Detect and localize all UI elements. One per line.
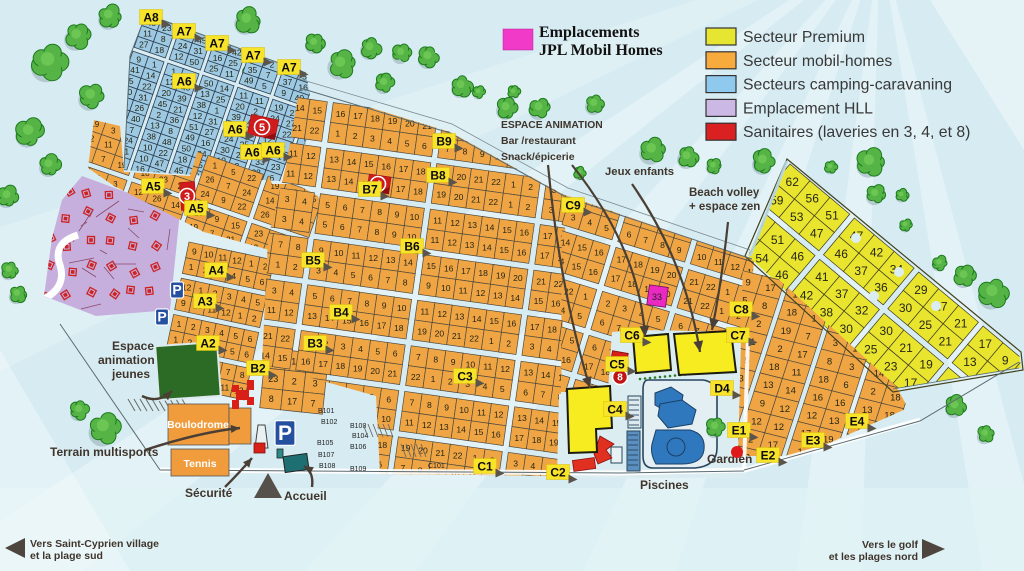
svg-text:25: 25 — [209, 64, 219, 74]
svg-text:12: 12 — [447, 238, 457, 248]
svg-text:51: 51 — [189, 122, 199, 132]
svg-text:22: 22 — [142, 81, 152, 91]
svg-text:11: 11 — [225, 69, 234, 79]
svg-text:11: 11 — [792, 368, 802, 379]
svg-text:6: 6 — [843, 380, 848, 391]
svg-text:1: 1 — [238, 310, 243, 320]
svg-text:7: 7 — [357, 225, 362, 235]
svg-text:2: 2 — [292, 376, 297, 386]
svg-text:30: 30 — [880, 324, 894, 338]
svg-text:2: 2 — [252, 313, 257, 323]
svg-text:20: 20 — [162, 88, 172, 98]
svg-text:9: 9 — [215, 215, 220, 224]
svg-text:12: 12 — [450, 218, 460, 228]
svg-text:16: 16 — [213, 53, 223, 63]
svg-text:C7: C7 — [730, 328, 746, 342]
svg-text:31: 31 — [208, 116, 218, 126]
svg-text:12: 12 — [422, 420, 432, 430]
svg-text:13: 13 — [329, 154, 339, 164]
svg-text:22: 22 — [700, 301, 710, 311]
svg-text:8: 8 — [762, 301, 767, 312]
svg-text:8: 8 — [161, 34, 166, 44]
svg-text:21: 21 — [263, 331, 273, 341]
svg-text:8: 8 — [375, 227, 380, 237]
svg-text:19: 19 — [919, 358, 933, 372]
svg-text:10: 10 — [397, 303, 407, 313]
svg-text:3: 3 — [285, 194, 290, 204]
svg-text:Sanitaires (laveries en 3, 4,: Sanitaires (laveries en 3, 4, et 8) — [743, 124, 970, 141]
svg-text:5: 5 — [255, 298, 260, 308]
svg-text:18: 18 — [890, 392, 901, 403]
svg-text:14: 14 — [472, 314, 482, 324]
svg-text:P: P — [157, 309, 166, 325]
svg-text:18: 18 — [394, 323, 404, 333]
svg-text:7: 7 — [360, 205, 365, 215]
svg-text:A7: A7 — [176, 24, 192, 38]
svg-text:26: 26 — [135, 103, 145, 113]
svg-text:17: 17 — [611, 274, 621, 284]
svg-text:10: 10 — [459, 405, 469, 415]
svg-text:6: 6 — [368, 273, 373, 283]
svg-text:22: 22 — [281, 333, 291, 343]
svg-text:19: 19 — [417, 326, 427, 336]
svg-text:A5: A5 — [145, 179, 161, 193]
svg-text:Beach volley: Beach volley — [689, 187, 760, 199]
svg-text:7: 7 — [410, 398, 415, 408]
svg-text:17: 17 — [797, 350, 808, 361]
svg-text:11: 11 — [430, 235, 439, 245]
svg-text:8: 8 — [365, 298, 370, 308]
svg-text:19: 19 — [549, 438, 559, 448]
svg-text:25: 25 — [216, 95, 226, 105]
svg-text:22: 22 — [453, 450, 463, 460]
svg-text:6: 6 — [244, 350, 249, 360]
svg-text:21: 21 — [474, 175, 484, 185]
svg-text:38: 38 — [197, 100, 207, 110]
svg-text:1: 1 — [511, 180, 516, 190]
svg-text:C2: C2 — [550, 465, 566, 479]
svg-text:7: 7 — [130, 125, 135, 135]
svg-text:9: 9 — [426, 281, 431, 291]
svg-text:30: 30 — [899, 301, 913, 315]
svg-text:41: 41 — [130, 65, 140, 75]
svg-text:21: 21 — [436, 448, 446, 458]
svg-text:7: 7 — [226, 182, 231, 191]
svg-text:12: 12 — [774, 422, 785, 433]
svg-text:10: 10 — [466, 359, 476, 369]
svg-text:3: 3 — [513, 459, 518, 469]
svg-text:13: 13 — [150, 121, 160, 131]
svg-text:14: 14 — [561, 237, 571, 247]
svg-text:14: 14 — [403, 258, 413, 268]
svg-text:17: 17 — [765, 283, 776, 294]
svg-text:1: 1 — [173, 334, 178, 344]
svg-text:8: 8 — [269, 394, 274, 404]
svg-text:5: 5 — [604, 223, 609, 233]
svg-text:Secteurs camping-caravaning: Secteurs camping-caravaning — [743, 77, 952, 94]
svg-text:4: 4 — [531, 461, 536, 471]
svg-text:3: 3 — [341, 341, 346, 351]
svg-text:4: 4 — [334, 268, 339, 278]
svg-text:47: 47 — [810, 227, 824, 241]
svg-text:6: 6 — [330, 293, 335, 303]
svg-text:3: 3 — [313, 379, 318, 389]
svg-text:Sécurité: Sécurité — [185, 486, 233, 500]
svg-text:B4: B4 — [333, 305, 349, 319]
svg-text:5: 5 — [233, 331, 238, 341]
svg-text:E3: E3 — [806, 433, 821, 447]
svg-text:9: 9 — [1002, 354, 1009, 368]
svg-text:37: 37 — [854, 264, 868, 278]
svg-text:18: 18 — [336, 361, 346, 371]
svg-text:24: 24 — [242, 188, 251, 197]
svg-text:62: 62 — [786, 175, 800, 189]
svg-text:A6: A6 — [176, 74, 192, 88]
svg-text:B107: B107 — [318, 452, 334, 459]
svg-text:C6: C6 — [624, 328, 640, 342]
svg-text:13: 13 — [386, 255, 396, 265]
svg-text:1: 1 — [725, 287, 730, 297]
svg-text:1: 1 — [276, 260, 281, 270]
svg-text:10: 10 — [143, 142, 153, 152]
svg-text:C5: C5 — [609, 357, 625, 371]
svg-text:17: 17 — [461, 266, 471, 276]
svg-text:A6: A6 — [244, 145, 260, 159]
svg-text:17: 17 — [353, 111, 363, 121]
svg-text:51: 51 — [825, 208, 839, 222]
svg-text:8: 8 — [240, 370, 245, 380]
svg-text:18: 18 — [413, 186, 423, 196]
svg-text:8: 8 — [168, 126, 173, 136]
svg-text:24: 24 — [178, 41, 188, 51]
svg-text:7: 7 — [226, 367, 231, 377]
svg-text:5: 5 — [405, 138, 410, 148]
svg-text:8: 8 — [427, 400, 432, 410]
svg-text:6: 6 — [422, 141, 427, 151]
svg-text:5: 5 — [351, 270, 356, 280]
svg-text:6: 6 — [678, 321, 683, 331]
svg-text:11: 11 — [459, 286, 468, 296]
svg-text:12: 12 — [476, 288, 486, 298]
svg-text:3: 3 — [370, 134, 375, 144]
svg-text:Piscines: Piscines — [640, 478, 689, 492]
svg-text:22: 22 — [706, 282, 716, 292]
svg-text:18: 18 — [478, 268, 488, 278]
svg-text:21: 21 — [954, 316, 968, 330]
svg-text:C9: C9 — [565, 198, 581, 212]
svg-text:1: 1 — [719, 306, 724, 316]
svg-text:15: 15 — [313, 106, 323, 116]
svg-text:24: 24 — [201, 190, 210, 199]
svg-text:Vers Saint-Cyprien village: Vers Saint-Cyprien village — [30, 538, 159, 550]
svg-text:12: 12 — [807, 411, 818, 422]
svg-text:54: 54 — [755, 251, 769, 265]
svg-text:B106: B106 — [350, 444, 366, 451]
svg-text:9: 9 — [677, 245, 682, 255]
svg-text:9: 9 — [760, 398, 765, 409]
svg-text:15: 15 — [426, 261, 436, 271]
svg-text:20: 20 — [235, 101, 245, 111]
svg-text:7: 7 — [266, 70, 271, 80]
svg-text:17: 17 — [514, 433, 524, 443]
svg-text:B6: B6 — [404, 239, 420, 253]
svg-text:P: P — [172, 282, 181, 298]
svg-text:4: 4 — [547, 344, 552, 354]
svg-text:11: 11 — [104, 141, 113, 150]
svg-text:49: 49 — [244, 76, 254, 86]
svg-text:13: 13 — [439, 422, 449, 432]
svg-text:Snack/épicerie: Snack/épicerie — [501, 151, 575, 163]
svg-text:17: 17 — [979, 337, 993, 351]
svg-text:29: 29 — [914, 283, 928, 297]
svg-text:Secteur mobil-homes: Secteur mobil-homes — [743, 53, 892, 70]
svg-text:Emplacements: Emplacements — [539, 24, 639, 41]
svg-text:14: 14 — [220, 84, 230, 94]
svg-text:15: 15 — [231, 222, 240, 231]
svg-text:17: 17 — [543, 231, 553, 241]
svg-text:50: 50 — [182, 144, 192, 154]
svg-text:51: 51 — [771, 233, 785, 247]
svg-text:1: 1 — [215, 106, 220, 116]
svg-text:21: 21 — [173, 104, 183, 114]
svg-text:20: 20 — [454, 192, 464, 202]
svg-text:7: 7 — [101, 155, 106, 164]
svg-text:12: 12 — [369, 253, 379, 263]
svg-text:animation: animation — [98, 353, 155, 367]
svg-text:1: 1 — [213, 162, 218, 171]
svg-text:A4: A4 — [208, 263, 224, 277]
svg-text:3: 3 — [111, 127, 116, 136]
svg-text:11: 11 — [143, 29, 152, 39]
svg-text:5: 5 — [656, 314, 661, 324]
svg-text:5: 5 — [500, 384, 505, 394]
svg-text:13: 13 — [524, 368, 534, 378]
svg-text:B9: B9 — [436, 134, 452, 148]
svg-text:et la plage sud: et la plage sud — [30, 550, 103, 562]
svg-text:10: 10 — [139, 153, 149, 163]
svg-text:2: 2 — [528, 182, 533, 192]
svg-text:1: 1 — [583, 292, 588, 302]
svg-text:ESPACE ANIMATION: ESPACE ANIMATION — [501, 120, 603, 131]
svg-text:2: 2 — [353, 131, 358, 141]
svg-text:C4: C4 — [607, 402, 623, 416]
svg-text:20: 20 — [435, 329, 445, 339]
svg-text:19: 19 — [650, 265, 660, 275]
svg-text:10: 10 — [381, 414, 391, 424]
svg-text:45: 45 — [158, 99, 168, 109]
svg-text:Secteur Premium: Secteur Premium — [743, 29, 865, 46]
svg-text:46: 46 — [791, 250, 805, 264]
svg-text:D4: D4 — [714, 381, 730, 395]
svg-text:15: 15 — [278, 353, 288, 363]
svg-text:39: 39 — [231, 112, 241, 122]
svg-text:10: 10 — [334, 248, 344, 258]
svg-text:A7: A7 — [245, 48, 261, 62]
svg-text:22: 22 — [247, 174, 256, 183]
svg-text:16: 16 — [298, 82, 308, 92]
svg-text:8: 8 — [433, 354, 438, 364]
svg-text:B101: B101 — [318, 408, 334, 415]
svg-text:6: 6 — [248, 334, 253, 344]
svg-text:9: 9 — [746, 277, 751, 288]
svg-text:21: 21 — [899, 341, 913, 355]
svg-text:18: 18 — [532, 435, 542, 445]
svg-text:14: 14 — [456, 425, 466, 435]
svg-text:16: 16 — [594, 248, 604, 258]
svg-text:27: 27 — [205, 127, 215, 137]
svg-text:2: 2 — [526, 202, 531, 212]
svg-text:2: 2 — [870, 387, 875, 398]
svg-text:13: 13 — [763, 380, 774, 391]
svg-text:17: 17 — [530, 322, 540, 332]
svg-text:8: 8 — [403, 277, 408, 287]
svg-text:4: 4 — [302, 197, 307, 207]
svg-text:9: 9 — [281, 88, 286, 98]
svg-text:8: 8 — [617, 373, 623, 384]
svg-text:5: 5 — [375, 346, 380, 356]
svg-text:17: 17 — [287, 396, 297, 406]
svg-text:5: 5 — [570, 336, 575, 346]
svg-text:35: 35 — [248, 65, 258, 75]
svg-text:2: 2 — [448, 377, 453, 387]
svg-text:19: 19 — [781, 326, 792, 337]
svg-text:31: 31 — [193, 46, 203, 56]
svg-text:40: 40 — [131, 114, 141, 124]
svg-text:15: 15 — [534, 296, 544, 306]
svg-text:3: 3 — [622, 304, 627, 314]
svg-text:6: 6 — [260, 277, 265, 287]
svg-text:9: 9 — [221, 196, 226, 205]
svg-text:46: 46 — [835, 247, 849, 261]
svg-text:5: 5 — [231, 168, 236, 177]
svg-text:14: 14 — [146, 71, 156, 81]
svg-text:11: 11 — [477, 407, 486, 417]
svg-text:32: 32 — [855, 304, 869, 318]
svg-text:8: 8 — [827, 356, 832, 367]
svg-text:1: 1 — [249, 259, 254, 269]
svg-text:E1: E1 — [732, 423, 747, 437]
svg-text:22: 22 — [491, 177, 501, 187]
svg-text:14: 14 — [785, 386, 796, 397]
svg-text:2: 2 — [191, 322, 196, 332]
svg-text:10: 10 — [410, 212, 420, 222]
svg-text:12: 12 — [779, 404, 790, 415]
svg-text:11: 11 — [255, 96, 264, 106]
svg-text:50: 50 — [190, 57, 200, 67]
svg-text:B102: B102 — [321, 419, 337, 426]
svg-text:8: 8 — [296, 242, 301, 252]
svg-text:6: 6 — [592, 343, 597, 353]
svg-text:22: 22 — [411, 372, 421, 382]
svg-text:20: 20 — [667, 270, 677, 280]
svg-text:A7: A7 — [209, 36, 225, 50]
svg-text:12: 12 — [174, 52, 184, 62]
svg-text:15: 15 — [474, 427, 484, 437]
svg-text:13: 13 — [468, 220, 478, 230]
svg-text:4: 4 — [289, 288, 294, 298]
svg-text:15: 15 — [364, 159, 374, 169]
svg-text:2: 2 — [506, 338, 511, 348]
svg-text:12: 12 — [500, 364, 510, 374]
svg-text:18: 18 — [178, 155, 188, 165]
svg-text:B2: B2 — [250, 361, 266, 375]
svg-text:18: 18 — [787, 308, 798, 319]
svg-text:11: 11 — [218, 252, 227, 262]
svg-text:22: 22 — [158, 148, 168, 158]
svg-text:14: 14 — [482, 243, 492, 253]
svg-text:1: 1 — [489, 336, 494, 346]
svg-text:9: 9 — [192, 246, 197, 256]
svg-text:9: 9 — [395, 210, 400, 220]
svg-text:21: 21 — [471, 195, 481, 205]
svg-text:22: 22 — [282, 130, 292, 140]
svg-text:2: 2 — [156, 110, 161, 120]
svg-text:18: 18 — [370, 114, 380, 124]
svg-text:6: 6 — [600, 318, 605, 328]
svg-text:3: 3 — [530, 342, 535, 352]
svg-text:47: 47 — [155, 159, 165, 169]
svg-text:13: 13 — [307, 311, 317, 321]
svg-text:8: 8 — [463, 147, 468, 157]
svg-text:B8: B8 — [430, 168, 446, 182]
svg-text:Emplacement HLL: Emplacement HLL — [743, 100, 873, 117]
svg-text:7: 7 — [310, 399, 315, 409]
svg-text:C101: C101 — [428, 463, 445, 470]
svg-text:A2: A2 — [200, 336, 216, 350]
svg-text:4: 4 — [219, 328, 224, 338]
svg-text:10: 10 — [441, 283, 451, 293]
svg-text:39: 39 — [177, 93, 187, 103]
svg-text:1: 1 — [508, 199, 513, 209]
svg-text:9: 9 — [392, 229, 397, 239]
svg-text:11: 11 — [433, 215, 442, 225]
svg-text:5: 5 — [259, 122, 265, 134]
svg-text:3: 3 — [571, 213, 576, 223]
svg-text:23: 23 — [271, 162, 281, 172]
svg-text:16: 16 — [201, 138, 211, 148]
svg-text:Accueil: Accueil — [284, 489, 327, 503]
svg-text:4: 4 — [587, 218, 592, 228]
svg-text:C1: C1 — [477, 459, 493, 473]
svg-text:14: 14 — [344, 177, 354, 187]
svg-text:21: 21 — [689, 277, 699, 287]
svg-text:17: 17 — [617, 255, 627, 265]
svg-text:5: 5 — [325, 200, 330, 210]
svg-text:A8: A8 — [143, 10, 159, 24]
svg-text:JPL Mobil Homes: JPL Mobil Homes — [539, 42, 663, 59]
svg-text:7: 7 — [386, 275, 391, 285]
svg-text:18: 18 — [378, 440, 388, 450]
svg-text:48: 48 — [162, 137, 172, 147]
svg-text:16: 16 — [336, 109, 346, 119]
svg-text:Vers le golf: Vers le golf — [862, 539, 919, 551]
svg-text:56: 56 — [806, 192, 820, 206]
svg-text:25: 25 — [864, 343, 878, 357]
svg-text:19: 19 — [496, 271, 506, 281]
svg-text:25: 25 — [919, 318, 933, 332]
svg-text:30: 30 — [840, 322, 854, 336]
svg-text:1: 1 — [152, 60, 157, 70]
svg-text:1: 1 — [189, 262, 194, 272]
svg-text:22: 22 — [238, 203, 247, 212]
svg-text:2: 2 — [756, 319, 761, 330]
svg-text:9: 9 — [181, 298, 186, 308]
svg-text:26: 26 — [153, 194, 162, 203]
svg-text:A5: A5 — [188, 201, 204, 215]
svg-text:10: 10 — [697, 252, 707, 262]
svg-text:23: 23 — [254, 229, 263, 238]
svg-text:14: 14 — [510, 293, 520, 303]
